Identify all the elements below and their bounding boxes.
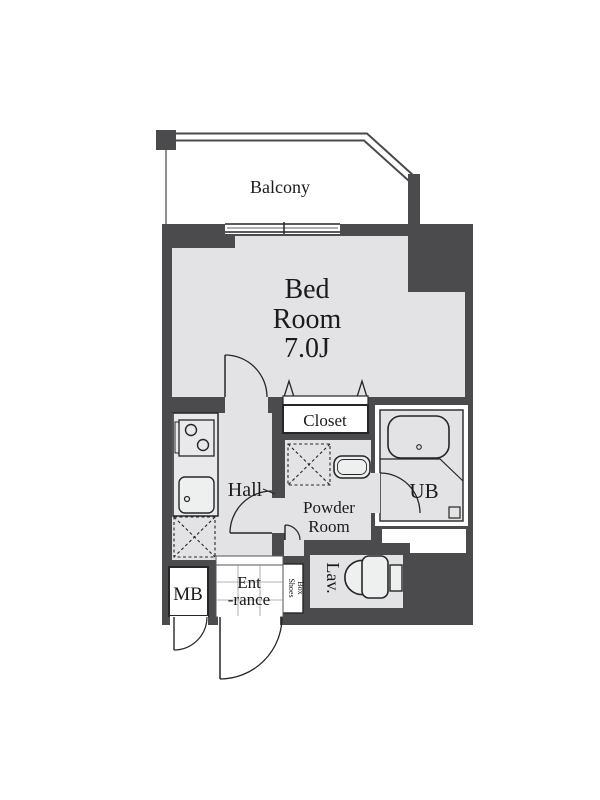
kitchen-counter <box>173 413 218 516</box>
bedroom: Bed Room 7.0J <box>162 222 473 413</box>
bedroom-topright-wall <box>408 224 473 292</box>
floor-plan-page: Balcony Bed Room 7.0J Closet <box>0 0 600 800</box>
meter-box-label: MB <box>173 584 203 605</box>
balcony-label: Balcony <box>250 177 310 197</box>
lavatory-label: Lav. <box>323 562 343 593</box>
hall: Hall <box>172 413 275 560</box>
bedroom-size-label: 7.0J <box>284 333 330 364</box>
shoes-box: Shoes Box <box>282 564 305 613</box>
vanity-sink-icon <box>334 456 370 478</box>
closet-door-track <box>283 396 368 405</box>
shoes-box-label-line2: Box <box>296 581 305 594</box>
exterior-notch-upper <box>382 529 466 543</box>
hall-label: Hall <box>228 479 263 501</box>
shoes-box-label-line1: Shoes <box>287 578 296 597</box>
bedroom-topleft-wall <box>162 224 235 248</box>
kitchen-sink-icon <box>179 477 214 513</box>
unit-bath: UB <box>371 405 468 526</box>
floor-plan: Balcony Bed Room 7.0J Closet <box>0 0 600 800</box>
entrance-label-line2: -rance <box>228 590 270 609</box>
balcony-post <box>156 130 176 150</box>
closet: Closet <box>283 396 368 433</box>
powder-room-label-line2: Room <box>308 517 350 536</box>
unit-bath-door-opening <box>371 473 380 513</box>
entrance-door-opening <box>218 616 280 625</box>
meter-box-opening <box>170 616 208 625</box>
closet-label: Closet <box>303 411 347 430</box>
exterior-notch-lower <box>410 543 466 553</box>
bedroom-label-line1: Bed <box>284 274 329 305</box>
powder-room-label-line1: Powder <box>303 498 355 517</box>
balcony-end-wall <box>408 174 420 226</box>
unit-bath-label: UB <box>409 479 438 503</box>
bedroom-door-opening <box>225 397 268 413</box>
bedroom-label-line2: Room <box>273 304 342 335</box>
entrance-step <box>216 556 283 565</box>
unit-bath-floor <box>380 410 463 521</box>
window <box>225 222 340 234</box>
lavatory-door-opening <box>284 540 304 556</box>
powder-room-door-opening <box>272 498 285 533</box>
